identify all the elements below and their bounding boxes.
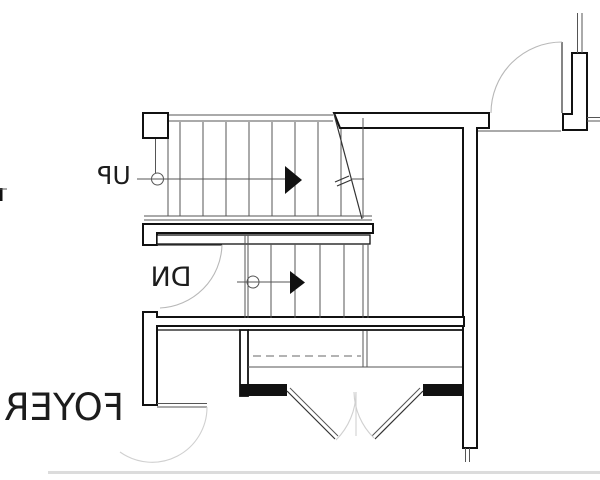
break-tick bbox=[337, 180, 351, 186]
up-arrow bbox=[285, 166, 302, 194]
floor-plan-canvas: UP DN FOYER bbox=[0, 0, 600, 480]
entry-door-swing-arc bbox=[491, 42, 562, 113]
break-tick bbox=[335, 176, 349, 182]
french-door-right-jamb bbox=[423, 384, 462, 396]
left-edge-mark bbox=[0, 188, 3, 201]
landing-edge bbox=[157, 235, 370, 244]
entry-door-jamb-wall bbox=[563, 53, 587, 130]
top-and-right-wall bbox=[334, 113, 489, 448]
dn-arrow bbox=[290, 271, 305, 294]
dn-stair-treads bbox=[271, 244, 344, 318]
stair-break-line bbox=[334, 114, 362, 219]
french-door-right-leaf bbox=[375, 391, 423, 439]
foyer-door-swing-arc bbox=[120, 407, 207, 462]
french-door-left-jamb bbox=[240, 384, 287, 396]
up-label: UP bbox=[97, 161, 130, 190]
foyer-wall bbox=[143, 312, 464, 405]
up-stair-run bbox=[144, 115, 372, 220]
french-door-left-arc bbox=[336, 392, 356, 440]
foyer-label: FOYER bbox=[4, 386, 124, 429]
up-direction-symbol bbox=[137, 166, 364, 194]
foyer-door bbox=[120, 404, 207, 463]
dn-label: DN bbox=[151, 262, 192, 293]
dn-stair-run bbox=[245, 235, 368, 318]
up-stair-treads bbox=[180, 122, 341, 216]
french-door-right-arc bbox=[354, 392, 374, 438]
under-stair-closet bbox=[157, 330, 463, 367]
french-door-left-leaf bbox=[287, 391, 335, 439]
french-doors bbox=[287, 388, 423, 440]
newel-post bbox=[143, 113, 168, 138]
floor-plan-svg: UP DN FOYER bbox=[0, 0, 600, 480]
